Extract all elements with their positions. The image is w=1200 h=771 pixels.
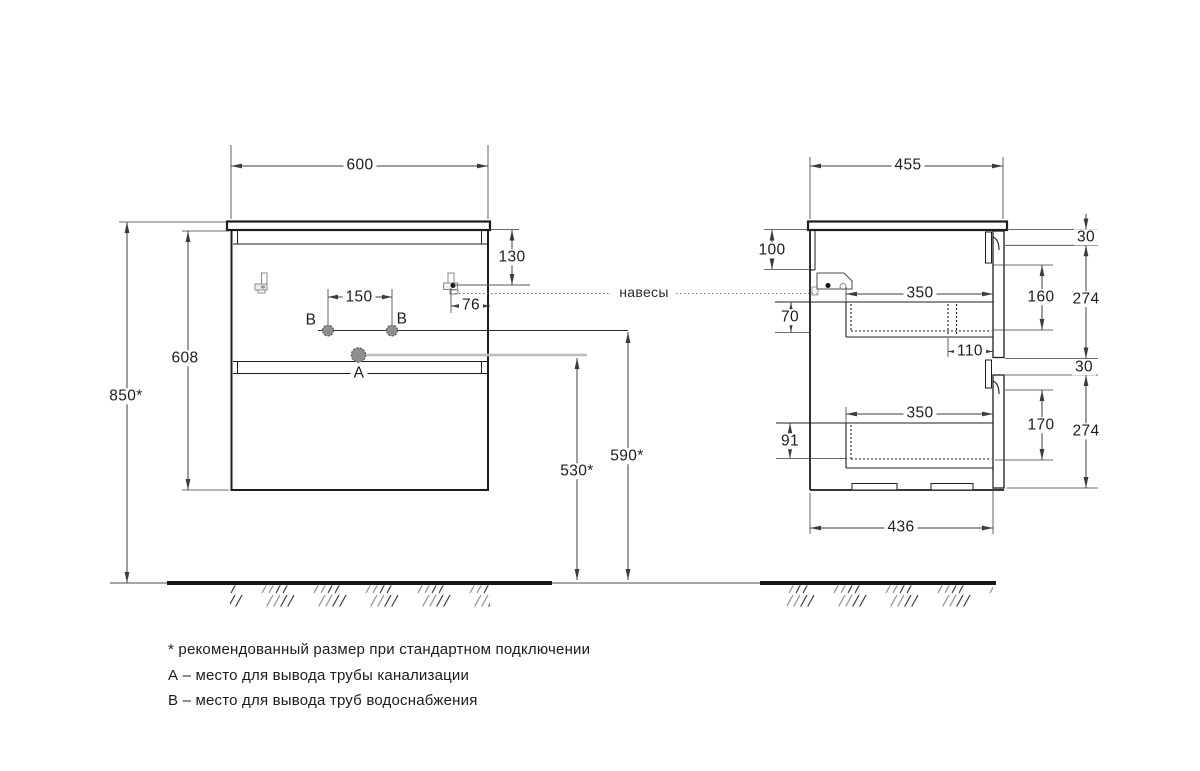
dim-front1-panel: 274 — [1069, 291, 1102, 307]
dim-top-height: 850* — [106, 388, 146, 404]
dim-supply-spacing: 150 — [342, 289, 375, 305]
dim-hanger-side-offset: 76 — [459, 297, 483, 313]
dim-drawer2-depth: 350 — [903, 405, 936, 421]
dim-body-height: 608 — [168, 350, 201, 366]
dim-side-depth: 455 — [891, 157, 924, 173]
dim-drawer1-rim: 70 — [778, 309, 802, 325]
label-point-b-right: В — [397, 311, 408, 327]
countertop-front — [227, 222, 490, 231]
countertop-side — [808, 222, 1007, 231]
drawer2-box — [776, 423, 993, 468]
dim-front-width: 600 — [343, 157, 376, 173]
dim-drain-height: 530* — [557, 463, 597, 479]
hangers-callout: навесы — [613, 285, 674, 299]
label-point-a: А — [351, 365, 368, 381]
floor-hatch-left — [230, 586, 490, 607]
dim-front2-top-gap: 30 — [1072, 359, 1096, 375]
dim-front1-top-gap: 30 — [1074, 229, 1098, 245]
bottom-notch-2 — [931, 484, 973, 491]
dim-front1-opening: 160 — [1024, 289, 1057, 305]
supply-hole-left — [323, 325, 334, 336]
drawer1-box — [775, 302, 993, 337]
drain-hole — [351, 348, 365, 362]
side-view-dimensions — [764, 157, 1098, 534]
dim-drawer2-rim: 91 — [778, 433, 802, 449]
dim-bottom-depth: 436 — [884, 519, 917, 535]
floor-line — [110, 583, 996, 607]
dim-front2-opening: 170 — [1024, 417, 1057, 433]
note-point-b: В – место для вывода труб водоснабжения — [168, 693, 478, 710]
dim-hanger-zone: 100 — [755, 242, 788, 258]
hanger-point-dot-side — [826, 283, 831, 288]
front-rail-upper — [986, 232, 992, 263]
note-recommended-size: * рекомендованный размер при стандартном… — [168, 642, 590, 659]
dim-front2-panel: 274 — [1069, 423, 1102, 439]
label-point-b-left: В — [306, 312, 317, 328]
bottom-notch-1 — [852, 484, 897, 491]
note-point-a: А – место для вывода трубы канализации — [168, 668, 469, 685]
dim-hanger-drop: 130 — [495, 249, 528, 265]
installation-drawing: 600 850* 608 130 76 150 530* 590* А В В … — [0, 0, 1200, 771]
floor-hatch-right — [787, 586, 993, 607]
front-rail-lower — [986, 360, 992, 388]
dim-drawer1-depth: 350 — [903, 285, 936, 301]
hanger-point-dot — [451, 283, 456, 288]
dim-supply-height: 590* — [607, 448, 647, 464]
dim-slide-clearance: 110 — [954, 343, 986, 359]
